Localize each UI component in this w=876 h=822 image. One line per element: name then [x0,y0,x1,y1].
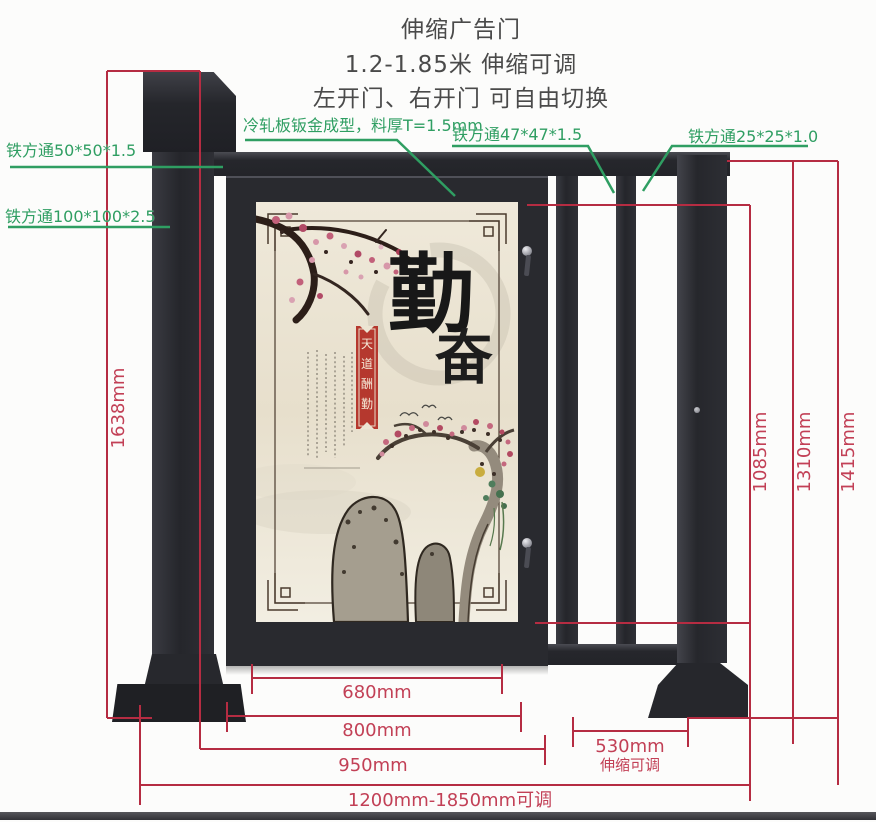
label-tube-47: 铁方通47*47*1.5 [452,121,582,145]
dim-mid-height: 1310mm [794,412,815,493]
label-sheet-metal: 冷轧板钣金成型，料厚T=1.5mm [243,112,483,136]
dim-extension-width: 530mm [595,736,664,757]
dim-door-width: 800mm [342,720,411,741]
dim-door-height: 1085mm [750,412,771,493]
dim-total-height: 1638mm [108,368,129,449]
label-tube-25: 铁方通25*25*1.0 [688,123,818,147]
product-diagram: 伸缩广告门 1.2-1.85米 伸缩可调 左开门、右开门 可自由切换 [0,0,876,822]
dim-panel-width: 680mm [342,682,411,703]
label-tube-100: 铁方通100*100*2.5 [5,203,156,227]
dim-total-width: 1200mm-1850mm可调 [348,790,552,811]
dim-leaf-width: 950mm [338,755,407,776]
label-tube-50: 铁方通50*50*1.5 [6,137,136,161]
dim-extension-note: 伸缩可调 [600,756,660,774]
dim-frame-height: 1415mm [838,412,859,493]
red-dimension-lines [107,71,838,805]
